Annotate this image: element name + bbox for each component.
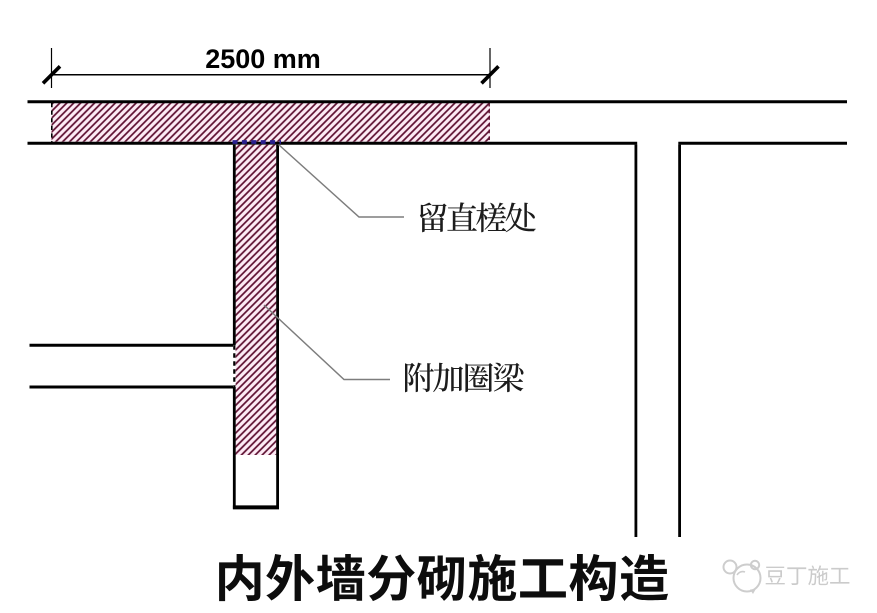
- svg-text:2500 mm: 2500 mm: [205, 44, 321, 74]
